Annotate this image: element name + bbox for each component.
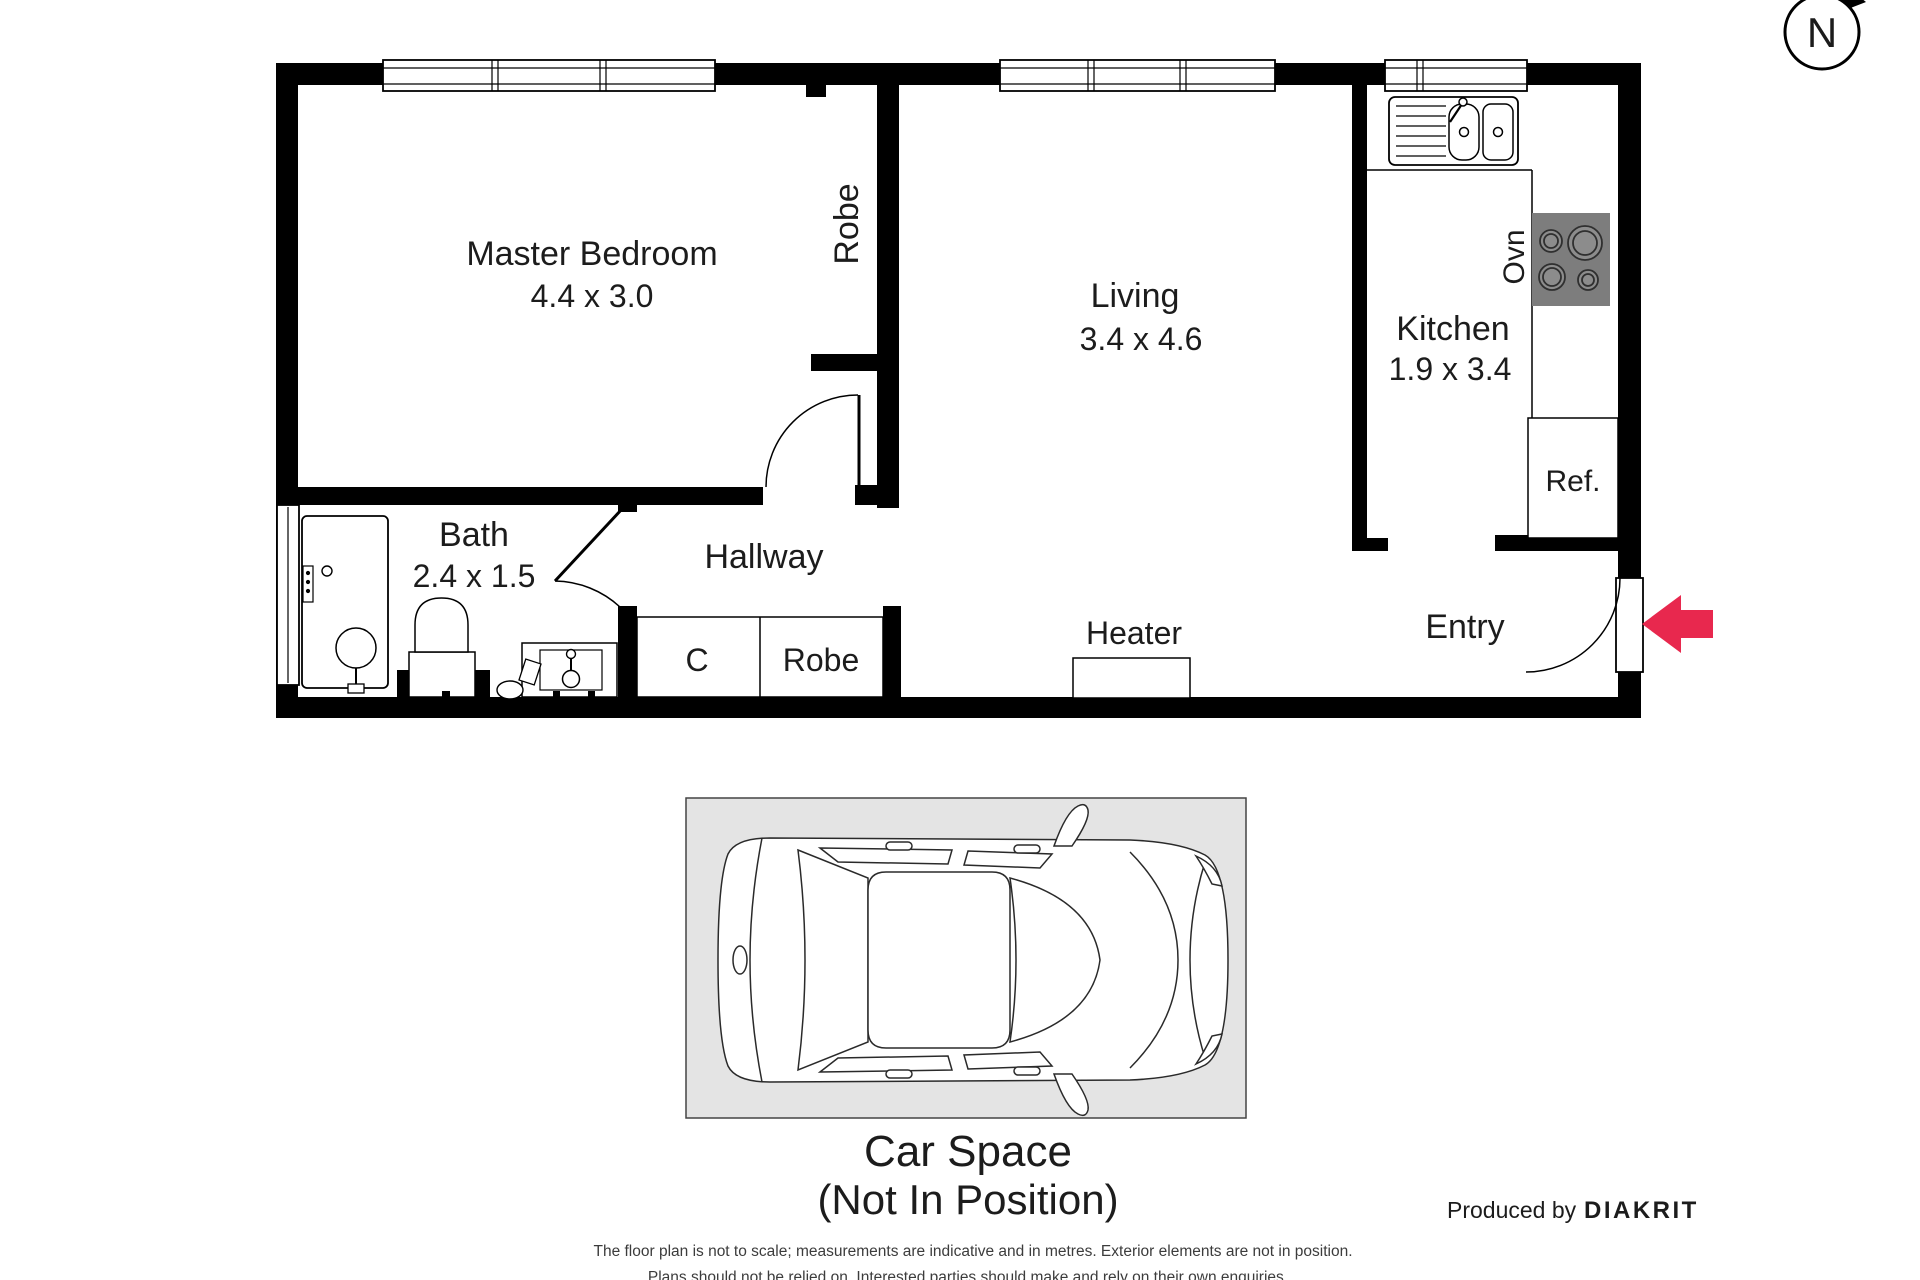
compass-label: N: [1807, 9, 1837, 56]
label-oven: Ovn: [1498, 229, 1531, 284]
car-space: [686, 798, 1246, 1118]
entry-arrow-icon: [1642, 595, 1713, 653]
label-living: Living: [1091, 277, 1180, 315]
disclaimer-line2: Plans should not be relied on. Intereste…: [648, 1269, 1288, 1280]
dims-living: 3.4 x 4.6: [1080, 321, 1203, 357]
toilet-icon: [409, 598, 475, 697]
car-space-subtitle: (Not In Position): [817, 1176, 1118, 1223]
label-closet: C: [685, 642, 708, 678]
heater-box: [1073, 658, 1190, 698]
window-living: [1000, 60, 1275, 91]
label-entry: Entry: [1425, 608, 1504, 646]
brand-logo: DIAKRIT: [1584, 1197, 1699, 1224]
wall: [715, 63, 1000, 85]
label-master-bedroom: Master Bedroom: [466, 235, 717, 273]
dims-bath: 2.4 x 1.5: [413, 558, 536, 594]
car-icon: [718, 805, 1228, 1116]
door-master-bedroom: [766, 395, 859, 487]
door-bath: [555, 509, 622, 607]
wall-robe-stub: [811, 354, 877, 371]
disclaimer-line1: The floor plan is not to scale; measurem…: [593, 1243, 1352, 1260]
wall-bottom: [276, 697, 1641, 718]
stove-icon: [1532, 213, 1610, 306]
sink-icon: [1389, 97, 1518, 165]
label-heater: Heater: [1086, 615, 1182, 651]
window-bath: [277, 505, 299, 685]
label-fridge: Ref.: [1545, 465, 1600, 498]
label-kitchen: Kitchen: [1396, 310, 1509, 348]
compass: N: [1785, 0, 1866, 69]
wall-bedroom-bath: [298, 487, 763, 505]
wall-right-lower: [1618, 672, 1641, 718]
wall-right-upper: [1618, 63, 1641, 580]
door-entry: [1526, 578, 1643, 672]
wall-robe-stub-top: [806, 85, 826, 97]
floorplan-page: N Master Bedroom: [0, 0, 1920, 1280]
car-space-title: Car Space: [864, 1127, 1072, 1176]
label-robe-hall: Robe: [783, 642, 860, 678]
floorplan-canvas: N Master Bedroom: [0, 0, 1920, 1280]
shower-icon: [302, 516, 388, 693]
window-master-bedroom: [383, 60, 715, 91]
dims-master-bedroom: 4.4 x 3.0: [531, 278, 654, 314]
wall: [1275, 63, 1385, 85]
label-hallway: Hallway: [704, 538, 823, 576]
dims-kitchen: 1.9 x 3.4: [1389, 351, 1512, 387]
wall-closet-post-right: [883, 606, 901, 698]
label-bath: Bath: [439, 516, 509, 554]
window-kitchen: [1385, 60, 1527, 91]
wall-closet-post-left: [618, 606, 637, 698]
wall-kitchen-foot: [1352, 538, 1388, 551]
wall-living-kitchen: [1352, 85, 1367, 538]
wall-foot: [855, 485, 877, 505]
wall-bedroom-living: [877, 85, 899, 508]
produced-by-text: Produced by: [1447, 1197, 1577, 1223]
label-robe-bedroom: Robe: [828, 183, 866, 264]
